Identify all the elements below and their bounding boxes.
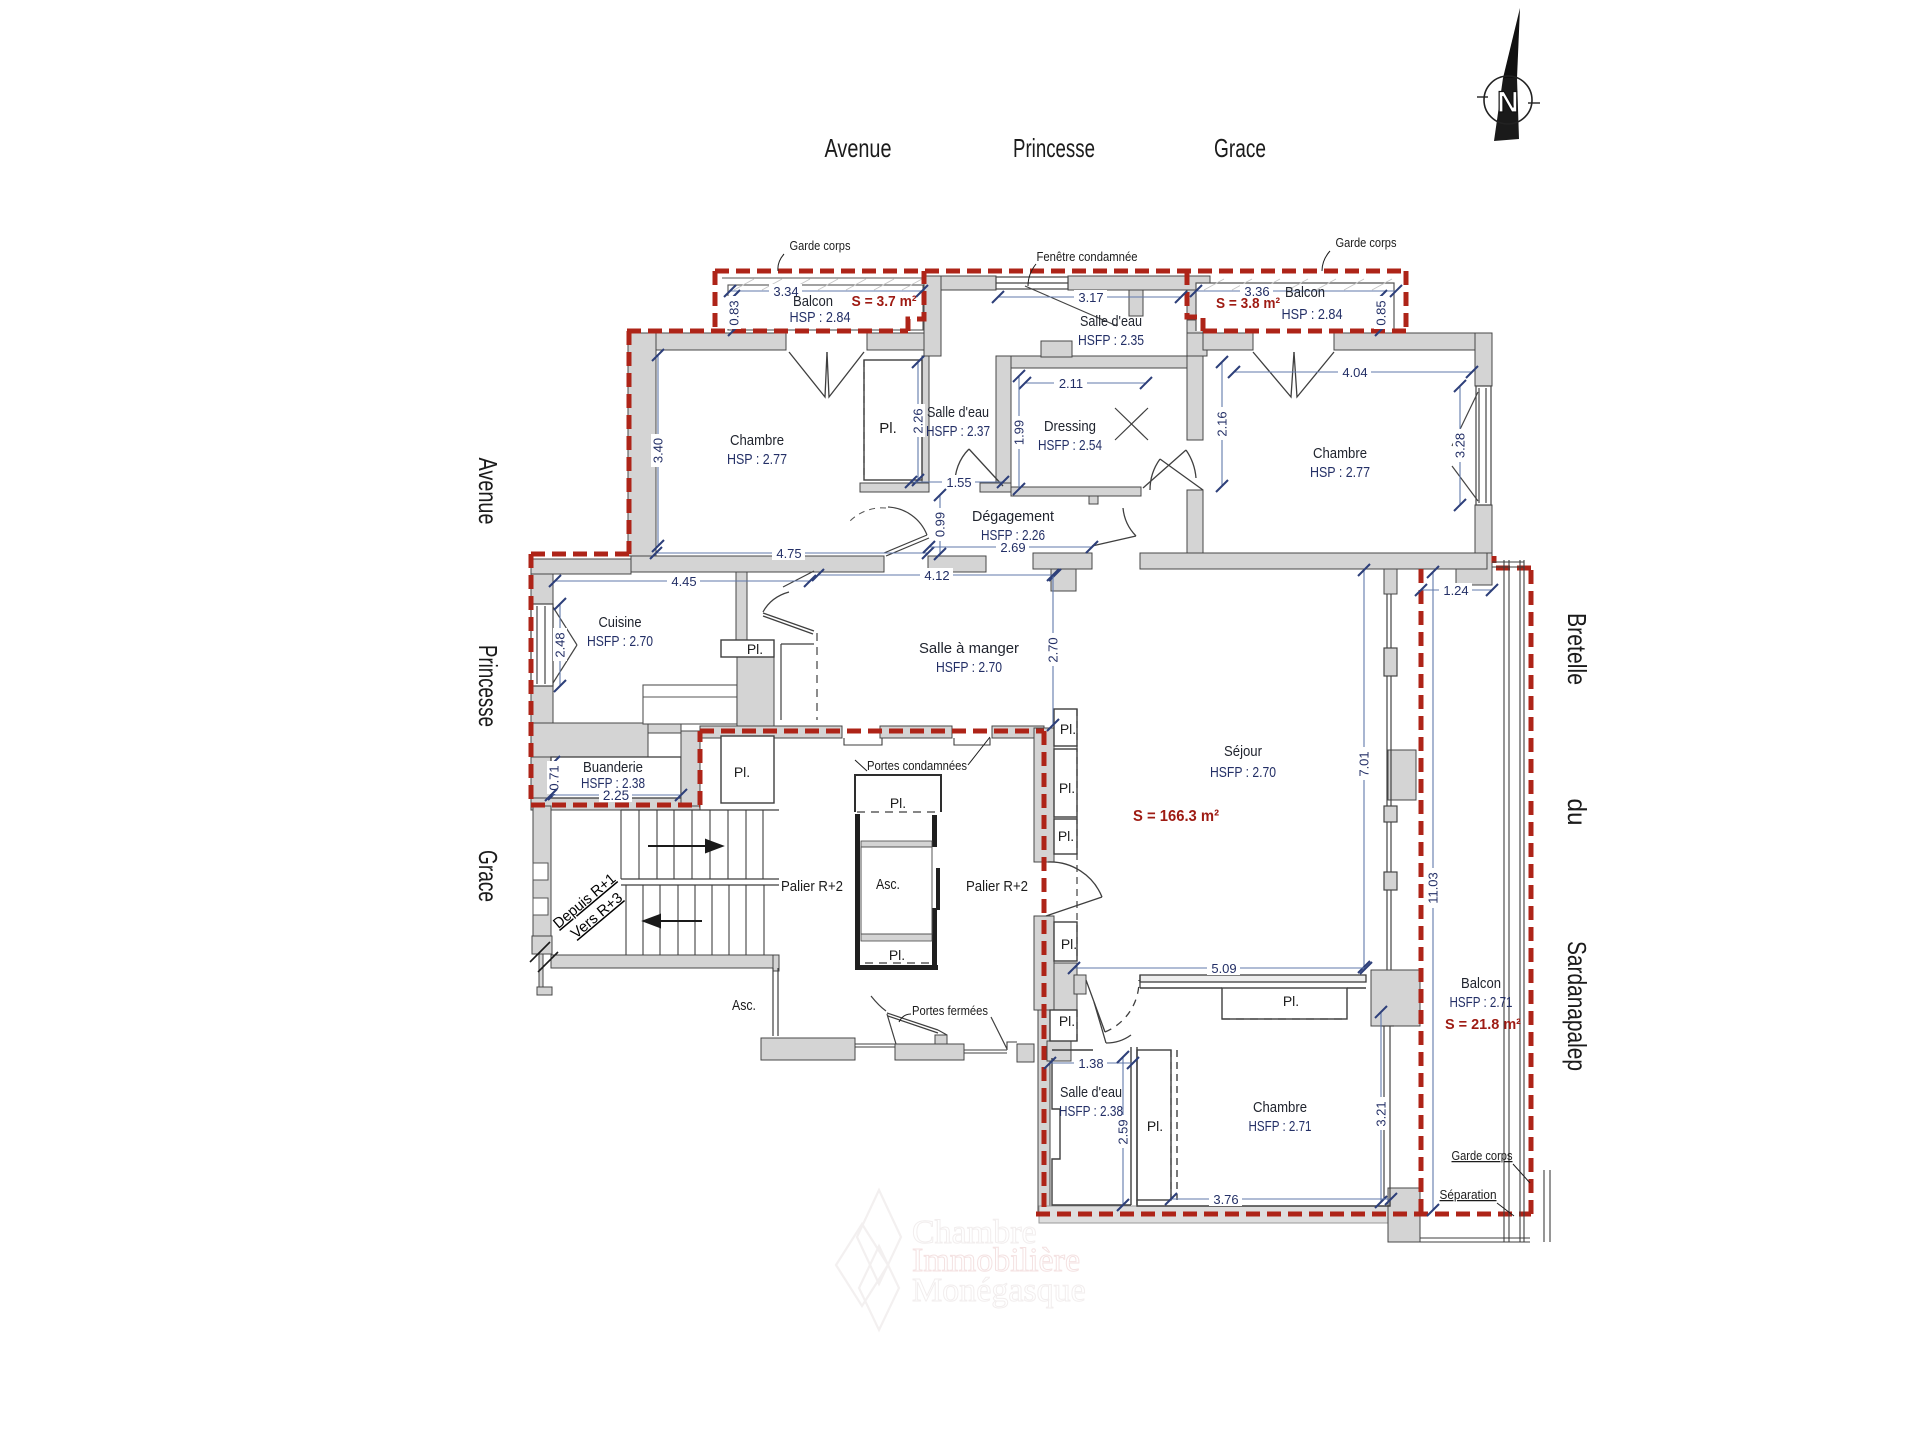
svg-text:Salle d'eau: Salle d'eau xyxy=(1060,1084,1122,1101)
svg-text:HSP : 2.77: HSP : 2.77 xyxy=(727,451,787,468)
svg-text:S = 166.3 m²: S = 166.3 m² xyxy=(1133,808,1219,825)
svg-text:Pl.: Pl. xyxy=(734,764,750,780)
svg-text:Avenue: Avenue xyxy=(473,458,503,525)
svg-text:0.83: 0.83 xyxy=(727,300,742,325)
svg-text:Garde corps: Garde corps xyxy=(1336,236,1397,250)
svg-text:Portes fermées: Portes fermées xyxy=(912,1004,988,1018)
svg-text:HSFP : 2.37: HSFP : 2.37 xyxy=(926,423,990,440)
svg-text:HSP : 2.84: HSP : 2.84 xyxy=(1282,306,1343,323)
svg-text:1.38: 1.38 xyxy=(1078,1056,1103,1071)
svg-text:Portes condamnées: Portes condamnées xyxy=(867,759,967,773)
svg-text:Pl.: Pl. xyxy=(1059,1013,1075,1029)
svg-text:2.26: 2.26 xyxy=(911,408,926,433)
svg-text:3.40: 3.40 xyxy=(651,438,666,463)
svg-text:1.55: 1.55 xyxy=(946,475,971,490)
svg-text:Asc.: Asc. xyxy=(876,876,900,893)
svg-text:4.04: 4.04 xyxy=(1342,365,1367,380)
svg-text:0.85: 0.85 xyxy=(1374,300,1389,325)
svg-text:HSFP : 2.70: HSFP : 2.70 xyxy=(1210,764,1276,781)
svg-text:HSP : 2.77: HSP : 2.77 xyxy=(1310,464,1370,481)
svg-text:Cuisine: Cuisine xyxy=(599,614,642,631)
svg-text:Pl.: Pl. xyxy=(1059,780,1075,796)
svg-text:Pl.: Pl. xyxy=(1147,1118,1163,1134)
svg-text:Chambre: Chambre xyxy=(730,432,784,449)
svg-text:Balcon: Balcon xyxy=(793,293,833,310)
svg-text:Chambre: Chambre xyxy=(1313,445,1367,462)
svg-text:Dressing: Dressing xyxy=(1044,418,1096,435)
svg-text:Chambre: Chambre xyxy=(1253,1099,1307,1116)
svg-text:Garde corps: Garde corps xyxy=(1452,1149,1513,1163)
svg-text:Pl.: Pl. xyxy=(1283,993,1299,1009)
svg-text:S = 3.7 m²: S = 3.7 m² xyxy=(852,293,917,310)
svg-text:HSP : 2.84: HSP : 2.84 xyxy=(790,309,851,326)
svg-text:Sardanapalep: Sardanapalep xyxy=(1562,941,1592,1071)
svg-text:Grace: Grace xyxy=(1214,133,1266,163)
svg-text:Pl.: Pl. xyxy=(879,420,897,437)
svg-text:Princesse: Princesse xyxy=(473,645,503,727)
svg-text:HSFP : 2.38: HSFP : 2.38 xyxy=(1059,1103,1123,1120)
svg-text:2.48: 2.48 xyxy=(553,632,568,657)
svg-text:Pl.: Pl. xyxy=(890,795,906,811)
svg-text:HSFP : 2.54: HSFP : 2.54 xyxy=(1038,437,1102,454)
svg-text:4.75: 4.75 xyxy=(776,546,801,561)
svg-text:3.17: 3.17 xyxy=(1078,290,1103,305)
svg-text:7.01: 7.01 xyxy=(1357,751,1372,776)
svg-text:3.28: 3.28 xyxy=(1453,433,1468,458)
svg-text:HSFP : 2.70: HSFP : 2.70 xyxy=(587,633,653,650)
svg-text:Salle à manger: Salle à manger xyxy=(919,640,1019,657)
svg-text:Princesse: Princesse xyxy=(1013,133,1095,163)
svg-text:Bretelle: Bretelle xyxy=(1562,613,1592,685)
svg-text:Pl.: Pl. xyxy=(1058,828,1074,844)
svg-text:2.16: 2.16 xyxy=(1215,411,1230,436)
svg-text:HSFP : 2.38: HSFP : 2.38 xyxy=(581,775,645,792)
svg-text:Palier R+2: Palier R+2 xyxy=(781,878,843,895)
svg-text:N: N xyxy=(1497,86,1519,119)
svg-text:Balcon: Balcon xyxy=(1285,284,1325,301)
svg-text:Balcon: Balcon xyxy=(1461,975,1501,992)
svg-text:HSFP : 2.26: HSFP : 2.26 xyxy=(981,527,1045,544)
svg-text:Pl.: Pl. xyxy=(747,641,763,657)
svg-text:HSFP : 2.71: HSFP : 2.71 xyxy=(1450,994,1513,1011)
svg-text:Séparation: Séparation xyxy=(1440,1188,1497,1202)
svg-text:Asc.: Asc. xyxy=(732,997,756,1014)
svg-text:du: du xyxy=(1562,799,1592,826)
svg-text:2.59: 2.59 xyxy=(1116,1119,1131,1144)
svg-text:Monégasque: Monégasque xyxy=(912,1272,1086,1309)
svg-text:2.11: 2.11 xyxy=(1059,376,1083,391)
svg-text:HSFP : 2.35: HSFP : 2.35 xyxy=(1078,332,1144,349)
svg-text:Dégagement: Dégagement xyxy=(972,508,1055,525)
svg-text:2.70: 2.70 xyxy=(1046,637,1061,662)
svg-text:Avenue: Avenue xyxy=(825,133,892,163)
svg-text:Pl.: Pl. xyxy=(889,947,905,963)
svg-text:HSFP : 2.71: HSFP : 2.71 xyxy=(1249,1118,1312,1135)
svg-text:Pl.: Pl. xyxy=(1060,721,1076,737)
svg-text:3.76: 3.76 xyxy=(1213,1192,1238,1207)
svg-text:1.24: 1.24 xyxy=(1443,583,1468,598)
svg-text:Salle d'eau: Salle d'eau xyxy=(927,404,989,421)
svg-text:Séjour: Séjour xyxy=(1224,743,1262,760)
svg-text:Salle d'eau: Salle d'eau xyxy=(1080,313,1142,330)
svg-text:Grace: Grace xyxy=(473,850,503,902)
svg-text:S = 21.8 m²: S = 21.8 m² xyxy=(1445,1016,1521,1033)
svg-text:4.12: 4.12 xyxy=(924,568,949,583)
svg-text:11.03: 11.03 xyxy=(1426,872,1441,904)
svg-text:Fenêtre condamnée: Fenêtre condamnée xyxy=(1037,250,1138,264)
svg-text:S = 3.8 m²: S = 3.8 m² xyxy=(1216,295,1280,312)
svg-text:5.09: 5.09 xyxy=(1211,961,1236,976)
svg-text:Pl.: Pl. xyxy=(1061,936,1077,952)
svg-text:0.99: 0.99 xyxy=(933,512,948,537)
svg-text:Buanderie: Buanderie xyxy=(583,759,643,776)
svg-text:Palier R+2: Palier R+2 xyxy=(966,878,1028,895)
svg-text:0.71: 0.71 xyxy=(547,765,562,790)
svg-text:Garde corps: Garde corps xyxy=(790,239,851,253)
svg-text:4.45: 4.45 xyxy=(671,574,696,589)
svg-text:3.21: 3.21 xyxy=(1374,1101,1389,1126)
svg-text:1.99: 1.99 xyxy=(1012,420,1027,445)
svg-text:HSFP : 2.70: HSFP : 2.70 xyxy=(936,659,1002,676)
